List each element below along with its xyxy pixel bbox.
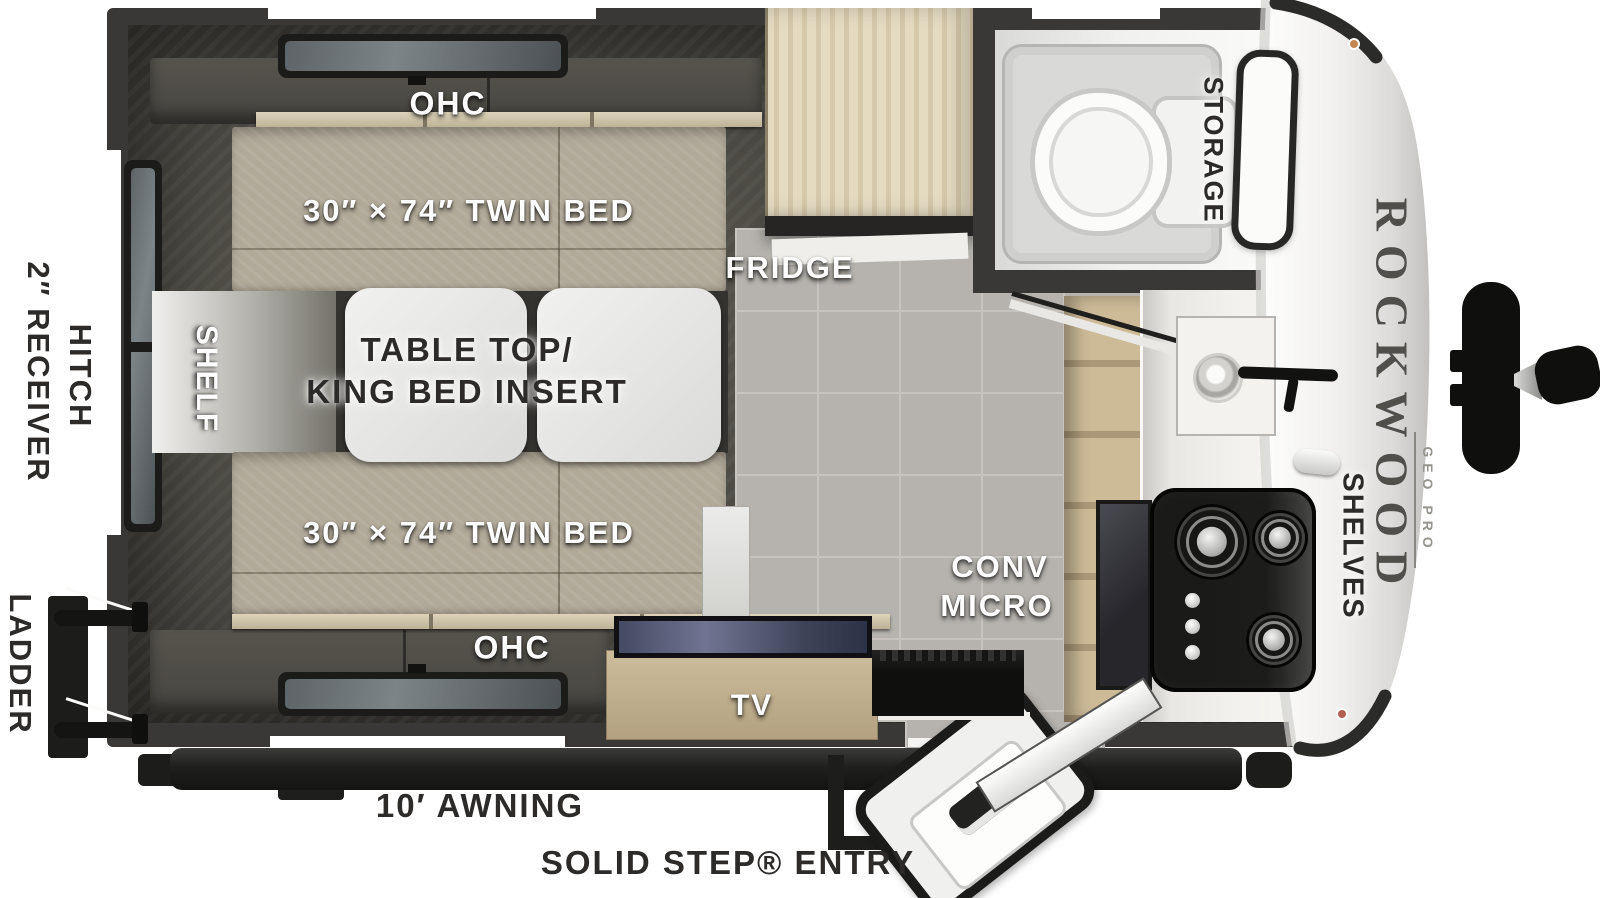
window-top-wall: [278, 34, 568, 78]
tv-screen: [614, 616, 872, 658]
shelves-label: SHELVES: [1336, 472, 1369, 619]
fridge-label: FRIDGE: [725, 250, 854, 286]
toilet-bowl: [1030, 88, 1172, 236]
pass-through-shelf-floor: [152, 291, 342, 453]
hitch-tab: [1450, 384, 1466, 406]
sink-bowl: [1196, 356, 1240, 400]
twin-bed-bottom-label: 30″ × 74″ TWIN BED: [303, 515, 635, 551]
receiver-hitch-label-line1: 2″ RECEIVER: [20, 261, 56, 482]
table-top-label-line2: KING BED INSERT: [306, 373, 628, 411]
cooktop-knob: [1185, 593, 1200, 608]
cooktop-knob: [1185, 619, 1200, 634]
cooktop-knob: [1185, 645, 1200, 660]
overhead-cabinet-top: [256, 112, 762, 127]
exterior-window-gap-top-left: [268, 7, 596, 19]
ladder-label: LADDER: [2, 593, 38, 734]
awning-label: 10′ AWNING: [376, 787, 584, 825]
fridge-overhead-cabinet: [765, 8, 975, 216]
brand-logo-text: ROCKWOOD: [1366, 198, 1419, 599]
marker-light-icon: [1349, 39, 1359, 49]
hitch-tab: [1450, 350, 1466, 372]
conv-micro-label-line1: CONV: [951, 549, 1049, 585]
receiver-hitch-label-line2: HITCH: [62, 324, 98, 429]
brand-logo-rule: [1414, 432, 1416, 568]
window-bottom-wall: [278, 672, 568, 716]
oven-glass-door: [1096, 500, 1152, 690]
cooktop-burner: [1252, 510, 1308, 566]
twin-bed-top-label: 30″ × 74″ TWIN BED: [303, 193, 635, 229]
marker-light-icon: [1337, 709, 1347, 719]
cooktop-burner: [1246, 612, 1302, 668]
shelf-label: SHELF: [189, 325, 223, 433]
storage-label: STORAGE: [1198, 76, 1229, 223]
ladder-mount: [132, 602, 148, 632]
ohc-top-label: OHC: [409, 86, 486, 123]
table-top-label-line1: TABLE TOP/: [360, 331, 573, 369]
cooktop-burner: [1174, 504, 1250, 580]
solid-step-entry-label: SOLID STEP® ENTRY: [541, 844, 915, 882]
exterior-window-gap-rear: [103, 150, 121, 535]
ohc-bottom-label: OHC: [473, 630, 550, 667]
storage-hatch: [1231, 49, 1300, 251]
tongue-jack-body: [1462, 282, 1520, 474]
brand-sub-text: GEO PRO: [1420, 446, 1436, 553]
ladder-mount: [132, 714, 148, 744]
conv-micro-label-line2: MICRO: [940, 588, 1053, 624]
convection-microwave: [872, 650, 1024, 716]
tv-label: TV: [731, 689, 773, 723]
floorplan-canvas: OHC 30″ × 74″ TWIN BED TABLE TOP/ KING B…: [0, 0, 1600, 898]
window-latch-bottom: [408, 664, 426, 673]
exterior-window-gap-bottom: [270, 736, 565, 747]
wardrobe-cabinet: [702, 506, 750, 628]
exterior-window-gap-top-right: [1032, 7, 1160, 19]
window-latch-top: [408, 76, 426, 85]
